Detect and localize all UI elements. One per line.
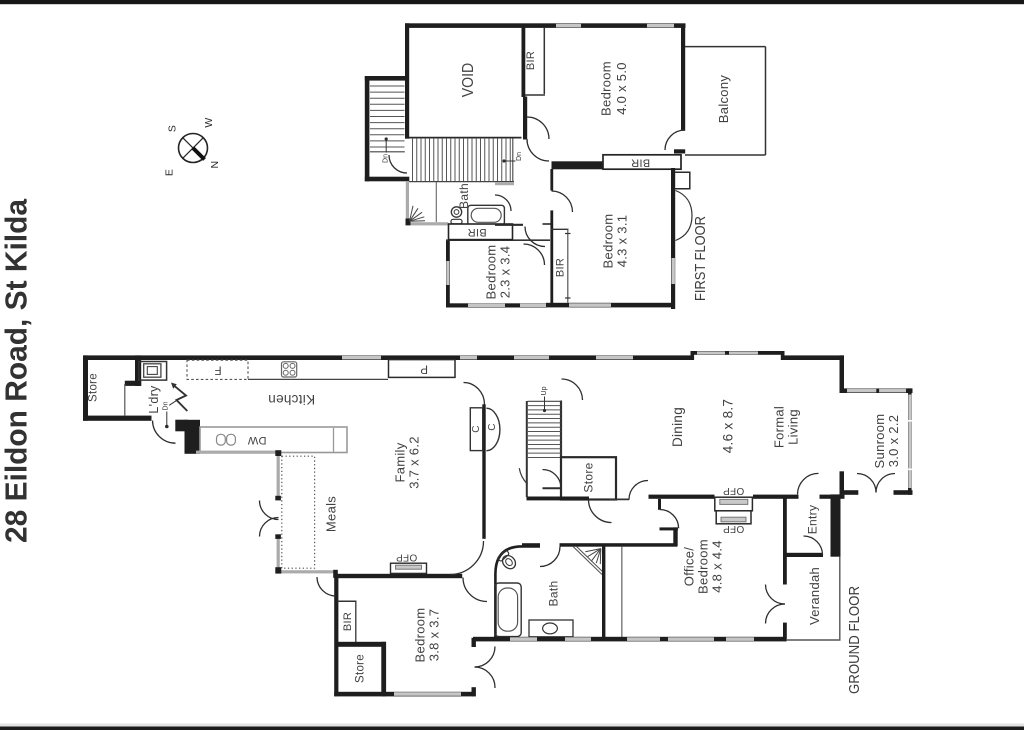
svg-text:F: F [214, 364, 221, 376]
svg-text:Balcony: Balcony [716, 75, 731, 124]
svg-text:C: C [471, 425, 482, 433]
svg-text:BIR: BIR [342, 612, 354, 631]
svg-text:Entry: Entry [806, 505, 820, 535]
svg-text:4.0 x 5.0: 4.0 x 5.0 [614, 62, 629, 115]
svg-text:BIR: BIR [631, 156, 650, 168]
svg-text:BIR: BIR [467, 226, 486, 238]
svg-text:28 Eildon Road, St Kilda: 28 Eildon Road, St Kilda [0, 198, 34, 543]
svg-text:3.7 x 6.2: 3.7 x 6.2 [407, 436, 422, 489]
svg-text:4.3 x 3.1: 4.3 x 3.1 [615, 215, 630, 268]
svg-text:OFP: OFP [723, 485, 744, 496]
svg-text:Bedroom: Bedroom [413, 608, 428, 663]
svg-text:2.3 x 3.4: 2.3 x 3.4 [498, 246, 513, 299]
svg-text:Dn: Dn [162, 401, 169, 410]
svg-text:L'dry: L'dry [147, 385, 161, 414]
svg-text:P: P [420, 362, 428, 374]
svg-text:Dining: Dining [670, 407, 685, 447]
svg-text:Bedroom: Bedroom [696, 539, 711, 594]
svg-text:Bedroom: Bedroom [484, 245, 499, 300]
svg-text:Dn: Dn [516, 152, 523, 161]
svg-text:N: N [209, 161, 221, 169]
svg-text:Store: Store [355, 654, 367, 683]
svg-text:OFP: OFP [723, 523, 744, 534]
svg-text:Kitchen: Kitchen [268, 392, 315, 407]
svg-text:BIR: BIR [525, 51, 537, 70]
svg-text:W: W [203, 117, 215, 127]
svg-text:FIRST FLOOR: FIRST FLOOR [692, 216, 709, 301]
svg-text:Sunroom: Sunroom [872, 414, 887, 469]
svg-text:3.8 x 3.7: 3.8 x 3.7 [427, 609, 442, 662]
svg-text:3.0 x 2.2: 3.0 x 2.2 [886, 415, 901, 468]
svg-text:Bath: Bath [457, 183, 471, 209]
svg-text:OFP: OFP [396, 552, 417, 563]
svg-text:4.8 x 4.4: 4.8 x 4.4 [710, 540, 725, 593]
svg-text:Formal: Formal [772, 406, 787, 448]
svg-text:Bedroom: Bedroom [601, 214, 616, 269]
svg-text:E: E [164, 169, 176, 176]
svg-text:Office/: Office/ [682, 547, 697, 587]
svg-text:4.6 x 8.7: 4.6 x 8.7 [721, 399, 736, 454]
svg-text:VOID: VOID [460, 63, 477, 98]
svg-text:Up: Up [541, 386, 548, 395]
svg-text:Family: Family [393, 442, 408, 482]
svg-text:Living: Living [786, 409, 801, 445]
svg-text:S: S [167, 125, 179, 132]
svg-text:Verandah: Verandah [807, 567, 822, 625]
svg-text:C: C [487, 423, 498, 431]
svg-text:DW: DW [247, 434, 266, 446]
svg-text:Store: Store [88, 373, 100, 402]
svg-text:BIR: BIR [555, 258, 567, 277]
svg-text:Bedroom: Bedroom [599, 61, 614, 116]
svg-text:GROUND FLOOR: GROUND FLOOR [846, 586, 863, 694]
svg-text:Store: Store [582, 462, 596, 492]
svg-text:Meals: Meals [324, 496, 339, 532]
svg-text:Bath: Bath [547, 581, 561, 607]
